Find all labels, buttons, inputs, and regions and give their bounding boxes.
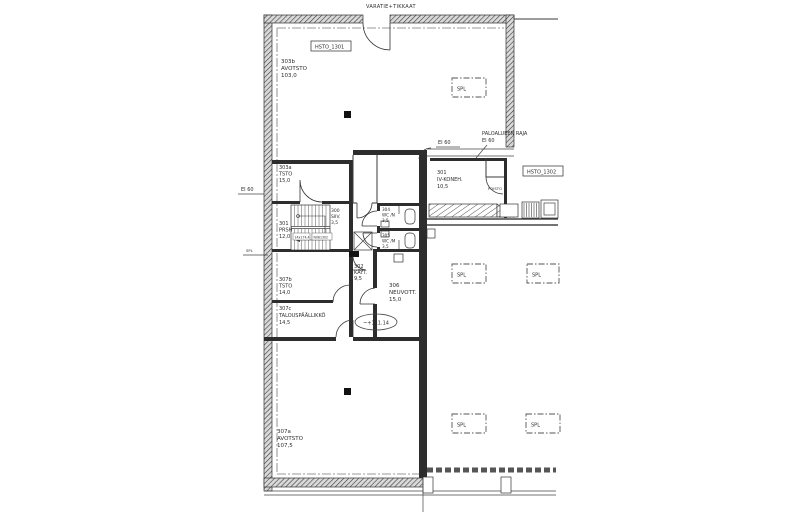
door-arc-303a [300,180,322,202]
room-type: WC /N [382,213,395,218]
room-area: 12,0 [279,234,290,240]
room-number: 300 [331,208,340,214]
spl-label-2: SPL [457,273,466,279]
room-number: 307b [279,277,292,283]
column-lower [344,388,351,395]
spl-wall-label: SPL [246,248,254,253]
wall-303a-bottom-1 [272,201,300,204]
door-arc-306 [360,288,375,304]
exterior-walls [264,15,558,495]
room-area: 14,5 [279,320,290,326]
equipment-1 [500,204,518,217]
door-arc-303b [363,23,390,50]
wall-bottom [264,478,427,487]
room-label-303a: 303a TSTO 15,0 [278,165,292,184]
room-number: 301 [279,221,289,227]
room-label-307c: 307c TALOUSPÄÄLLIKKÖ 14,5 [278,306,325,326]
toilet-fixture-304 [405,209,415,224]
room-area: 103,0 [281,73,297,79]
room-label-306-neuvott: 306 NEUVOTT. 15,0 [389,283,417,303]
room-label-302-kayt: 302 KÄYT. 9,5 [354,264,368,282]
wall-307b-bottom [272,300,333,303]
room-area: 3,5 [382,218,389,223]
door-arc-wc304 [362,211,377,226]
escape-route-note: VARATIE+TIKKAAT [366,4,416,10]
column-upper [344,111,351,118]
tag-1302-label: HSTO_1302 [527,170,556,176]
room-type: SIIV. [331,214,341,220]
wall-wc-left-3 [377,247,380,252]
room-label-303b: 303b AVOTSTO 103,0 [281,59,308,79]
door-arc-307b [333,285,350,302]
hall-column-1 [423,477,433,493]
shaft-solid [349,251,359,257]
room-type: AVOTSTO [281,66,308,72]
room-number: 306 [389,283,400,289]
wall-307c-bottom-1 [264,337,336,341]
fire-boundary-label-1: PALOALUEEN RAJA [482,131,528,137]
room-area: 107,5 [277,443,293,449]
stair-note-left: 14x174,4 [295,235,310,239]
wall-top-right [390,15,514,23]
room-type: PRSH [279,228,293,234]
room-label-305-wc: 305 WC /M 3,5 [382,233,396,249]
room-number: 301 [437,170,447,176]
fire-boundary-label-2: EI 60 [482,138,495,144]
room-area: 9,5 [354,276,362,282]
room-label-301-iv: 301 IV-KONEH. 10,5 [437,170,463,190]
wall-306-left-upper [373,252,377,288]
ei60-mid-label: EI 60 [438,140,451,146]
room-type: KÄYT. [354,269,368,276]
wall-303a-top [272,160,353,164]
room-type: WC /M [382,239,396,244]
room-number: 303b [281,59,295,65]
room-type: NEUVOTT. [389,290,417,296]
room-area: 10,5 [437,184,448,190]
wall-wc-partition [377,228,421,231]
room-type: TSTO [278,284,292,290]
wall-307c-bottom-2 [353,337,427,341]
wall-303a-right [349,160,353,252]
room-label-300-siiv: 300 SIIV. 3,5 [331,208,341,226]
stair-outline [291,205,330,250]
hatch-box-306 [394,254,403,262]
poisto-label: POISTO [488,186,502,191]
room-type: TSTO [278,172,292,178]
room-label-307a: 307a AVOTSTO 107,5 [277,429,304,449]
room-label-304-wc: 304 WC /N 3,5 [382,207,395,223]
wall-iv-top [430,158,507,161]
wall-top-left [264,15,363,23]
wall-wc-left-1 [377,203,380,211]
wall-wc-left-2 [377,226,380,233]
wall-niche [427,229,435,238]
spl-label-4: SPL [457,423,466,429]
wall-main-vertical [419,150,427,478]
room-type: IV-KONEH. [437,177,463,183]
wall-306-top [373,249,421,252]
room-number: 307c [279,306,292,312]
wall-wc-top [377,203,421,206]
wall-left [264,15,272,491]
spl-label-5: SPL [531,423,540,429]
room-number: 304 [382,207,390,212]
iv-machine-room [427,158,558,225]
toilet-fixture-305 [405,233,415,248]
room-number: 307a [277,429,291,435]
floor-plan-drawing: 14x174,4 N081302 [0,0,786,524]
elevation-label: ~+111.14 [363,321,389,327]
room-area: 14,0 [279,290,290,296]
room-area: 15,0 [279,178,290,184]
spl-label-3: SPL [532,273,541,279]
room-area: 15,0 [389,297,402,303]
stair-note-right: N081302 [314,235,329,239]
wall-right-upper [506,15,514,147]
room-area: 3,5 [382,244,389,249]
floor-plan-page: 14x174,4 N081302 [0,0,786,524]
room-label-301-prsh: 301 PRSH 12,0 [279,221,293,240]
ei60-left-label: EI 60 [241,187,254,193]
room-type: TALOUSPÄÄLLIKKÖ [278,312,325,319]
hall-column-2 [501,477,511,493]
tag-1301-label: HSTO_1301 [315,45,344,51]
room-area: 3,5 [331,220,338,226]
door-arc-siiv [357,203,372,218]
room-label-307b: 307b TSTO 14,0 [278,277,292,296]
wall-303a-bottom-2 [322,201,349,204]
room-number: 305 [382,233,390,238]
room-type: AVOTSTO [277,436,304,442]
spl-label-1: SPL [457,87,466,93]
vent-grille [429,204,497,217]
room-number: 303a [279,165,292,171]
wall-b [353,150,427,155]
stairs: 14x174,4 N081302 [291,205,332,250]
